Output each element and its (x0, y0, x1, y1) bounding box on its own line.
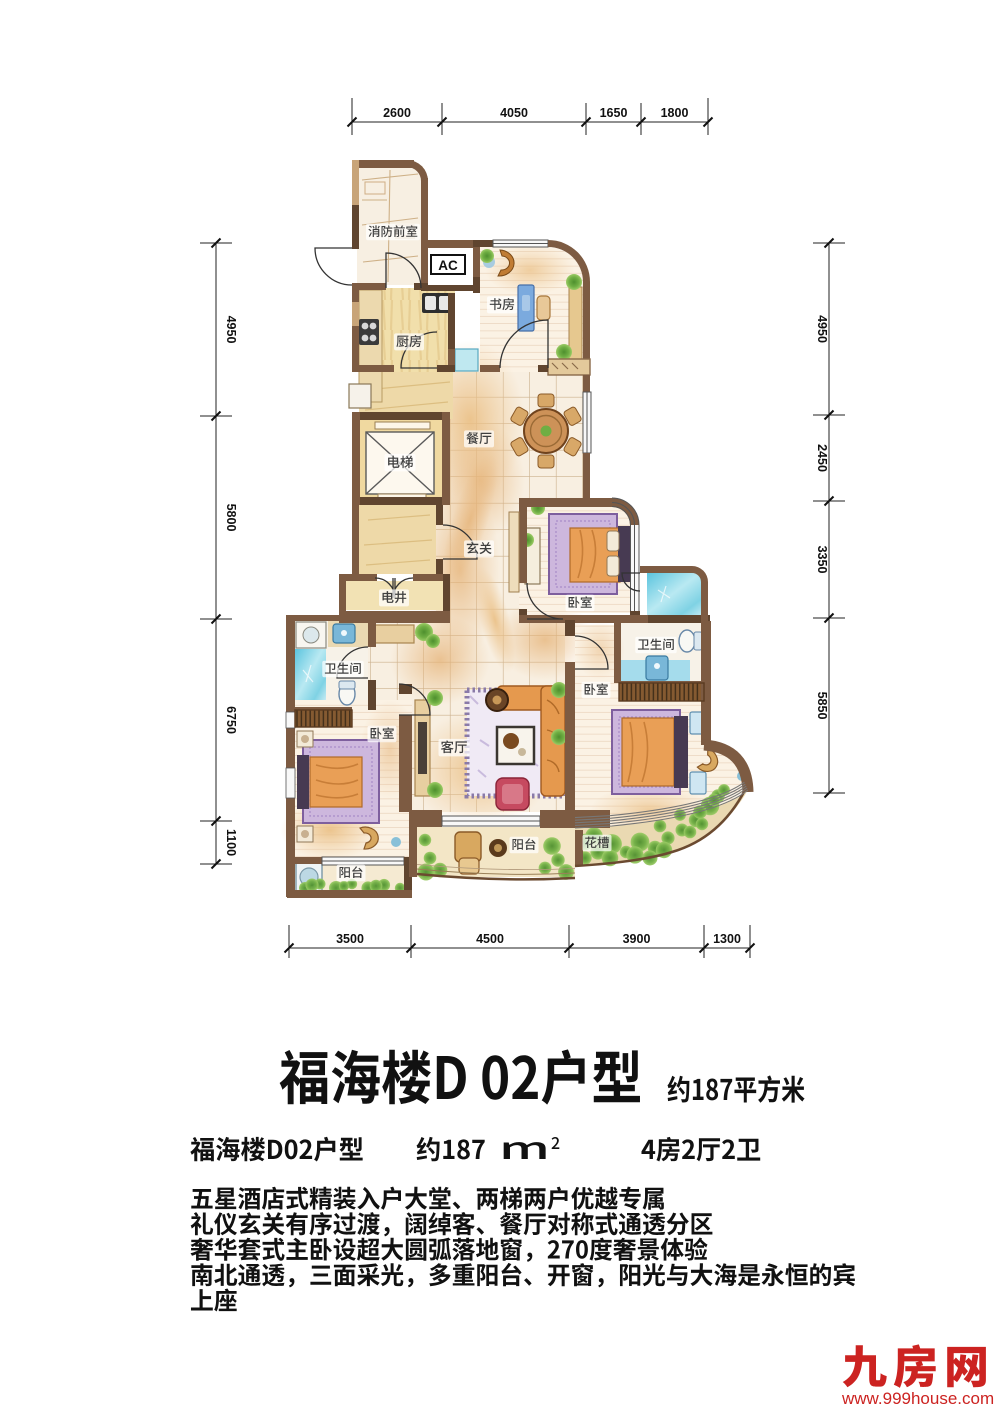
svg-text:1300: 1300 (713, 932, 741, 946)
svg-text:4950: 4950 (224, 316, 238, 344)
svg-text:4950: 4950 (815, 315, 829, 343)
svg-text:2450: 2450 (815, 444, 829, 472)
svg-text:3500: 3500 (336, 932, 364, 946)
svg-text:www.999house.com: www.999house.com (841, 1389, 994, 1408)
svg-text:3350: 3350 (815, 546, 829, 574)
svg-text:1100: 1100 (224, 829, 238, 856)
svg-text:2600: 2600 (383, 106, 411, 120)
svg-text:1800: 1800 (661, 106, 689, 120)
svg-text:1650: 1650 (600, 106, 628, 120)
svg-text:6750: 6750 (224, 706, 238, 734)
svg-text:3900: 3900 (623, 932, 651, 946)
svg-text:4500: 4500 (476, 932, 504, 946)
svg-text:5850: 5850 (815, 692, 829, 720)
svg-text:AC: AC (438, 258, 458, 273)
svg-text:5800: 5800 (224, 504, 238, 532)
svg-text:4050: 4050 (500, 106, 528, 120)
